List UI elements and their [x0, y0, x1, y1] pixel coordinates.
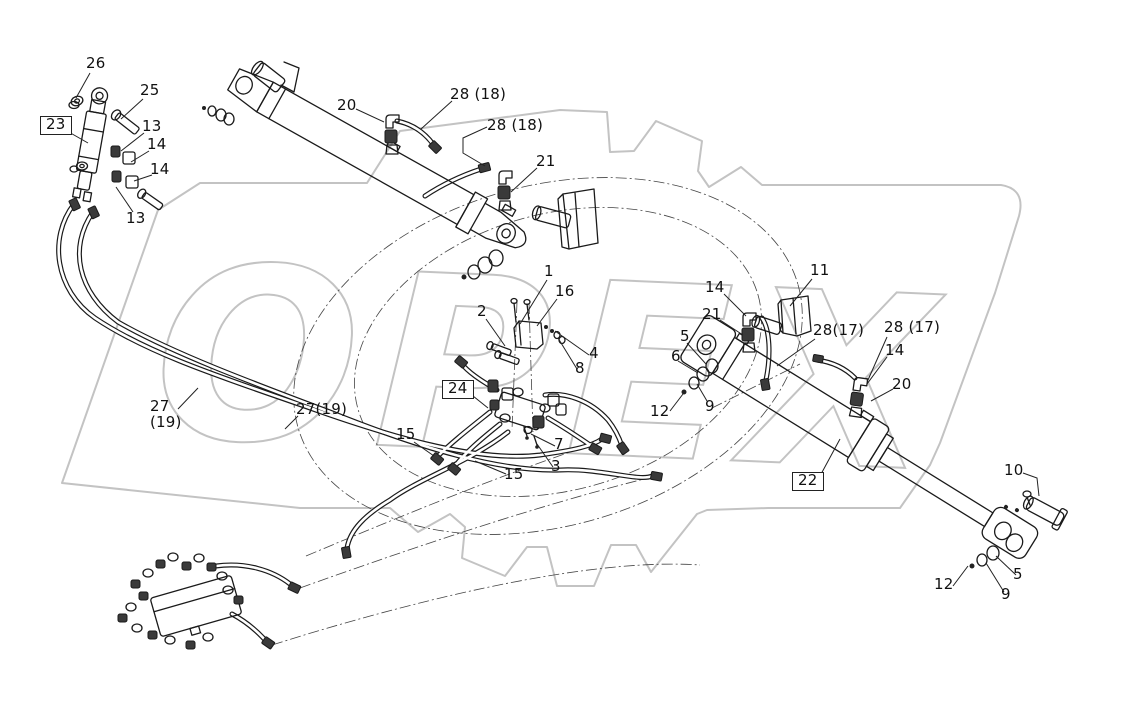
valve-fitting — [139, 592, 148, 600]
valve-fitting — [186, 641, 195, 649]
valve-fitting — [143, 569, 153, 577]
valve-fitting — [118, 614, 127, 622]
fitting-14-b — [126, 176, 138, 188]
leader-13-1 — [121, 133, 144, 151]
leader-5-2 — [996, 556, 1016, 575]
valve-fitting — [194, 554, 204, 562]
leader-25 — [121, 99, 143, 119]
leader-9-2 — [986, 563, 1004, 592]
valve-fitting — [182, 562, 191, 570]
leader-28-18-2 — [463, 127, 487, 166]
valve-fitting — [207, 563, 216, 571]
fitting-13-a — [111, 146, 120, 157]
leader-12-2 — [953, 566, 968, 586]
parts-diagram-page: OPEX — [0, 0, 1121, 724]
valve-fitting — [234, 596, 243, 604]
valve-fitting — [126, 603, 136, 611]
leader-23 — [67, 131, 88, 143]
leader-21-1 — [511, 168, 537, 192]
valve-fitting — [148, 631, 157, 639]
leader-26 — [76, 73, 90, 98]
opex-watermark-text: OPEX — [150, 212, 954, 526]
bolt-25 — [110, 108, 141, 136]
valve-fitting — [203, 633, 213, 641]
valve-fitting — [131, 580, 140, 588]
fitting-13-b — [112, 171, 121, 182]
valve-fitting — [156, 560, 165, 568]
fitting-14-a — [123, 152, 135, 164]
valve-fitting — [168, 553, 178, 561]
leader-13-2 — [116, 187, 133, 212]
top-clevis-pin — [249, 59, 286, 93]
diagram-line-art: OPEX — [0, 0, 1121, 724]
valve-fitting — [217, 572, 227, 580]
leader-20-1 — [356, 109, 384, 122]
hose-28-18-a — [397, 121, 433, 144]
opex-watermark: OPEX — [150, 212, 954, 526]
small-cylinder — [69, 86, 164, 211]
valve-fitting — [165, 636, 175, 644]
valve-fitting — [132, 624, 142, 632]
